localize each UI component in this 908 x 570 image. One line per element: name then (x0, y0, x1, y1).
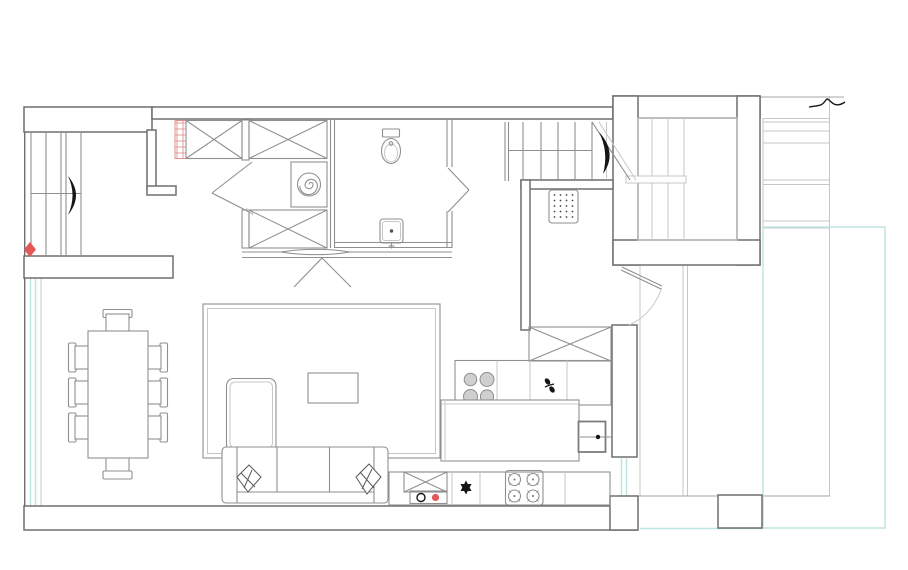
toilet (382, 129, 401, 164)
stair-landing-strip (626, 176, 686, 183)
dining-set (69, 310, 168, 480)
red-dot-marker (432, 494, 439, 501)
stairwell-wall-bottom (613, 240, 760, 265)
kitchen-bottom-counter (389, 472, 610, 505)
wall-corner-block (610, 496, 638, 530)
kitchen-tall-closet (529, 327, 611, 361)
red-diamond-marker (24, 242, 36, 257)
kitchen-island (441, 400, 579, 461)
wall-top (152, 107, 613, 119)
terrace-column (718, 495, 762, 528)
staircase-left (24, 132, 81, 257)
counter-faucet-glyph (544, 377, 556, 393)
kitchen (389, 327, 612, 505)
wall-sink-box (579, 422, 613, 453)
wall-bottom (24, 506, 637, 530)
wall-top-left (24, 107, 152, 132)
wall-closet-divider (242, 120, 249, 160)
wardrobe-2 (249, 121, 327, 159)
break-line-mark (809, 99, 845, 107)
star-symbol (461, 481, 472, 495)
wall-stair-hall (521, 180, 613, 189)
entry-floor-grate (549, 190, 578, 223)
bathroom-door (448, 168, 469, 212)
base-cabinet-crossed (404, 472, 447, 504)
stair-direction-arrow (599, 132, 610, 174)
washbasin (380, 219, 403, 249)
dining-table (88, 331, 148, 458)
terrace-glass-outline (763, 227, 885, 528)
black-ring-marker (417, 494, 425, 502)
wardrobe-1 (186, 121, 242, 159)
kitchen-wall-counter (455, 361, 611, 406)
gas-hob (506, 471, 544, 506)
stair-direction-arrow (68, 176, 76, 215)
opening-caret-mark (294, 258, 322, 287)
red-hatched-cabinet (175, 121, 186, 159)
closet-hallway (175, 121, 327, 249)
wall-pier (147, 130, 156, 190)
floor-plan-canvas (0, 0, 908, 570)
coffee-table (308, 373, 358, 403)
terrace-door (621, 267, 662, 325)
wall-dining-partition (24, 256, 173, 278)
grate-dots (554, 194, 574, 218)
washing-machine-spiral (300, 179, 318, 194)
floor-plan-page (0, 0, 908, 570)
washing-machine (291, 162, 327, 207)
bathroom (380, 129, 403, 249)
sliding-door (281, 249, 351, 287)
wardrobe-3 (249, 210, 327, 248)
sofa-chaise (227, 379, 277, 452)
hallway-door (212, 162, 253, 215)
wall-kitchen-right (612, 325, 637, 457)
